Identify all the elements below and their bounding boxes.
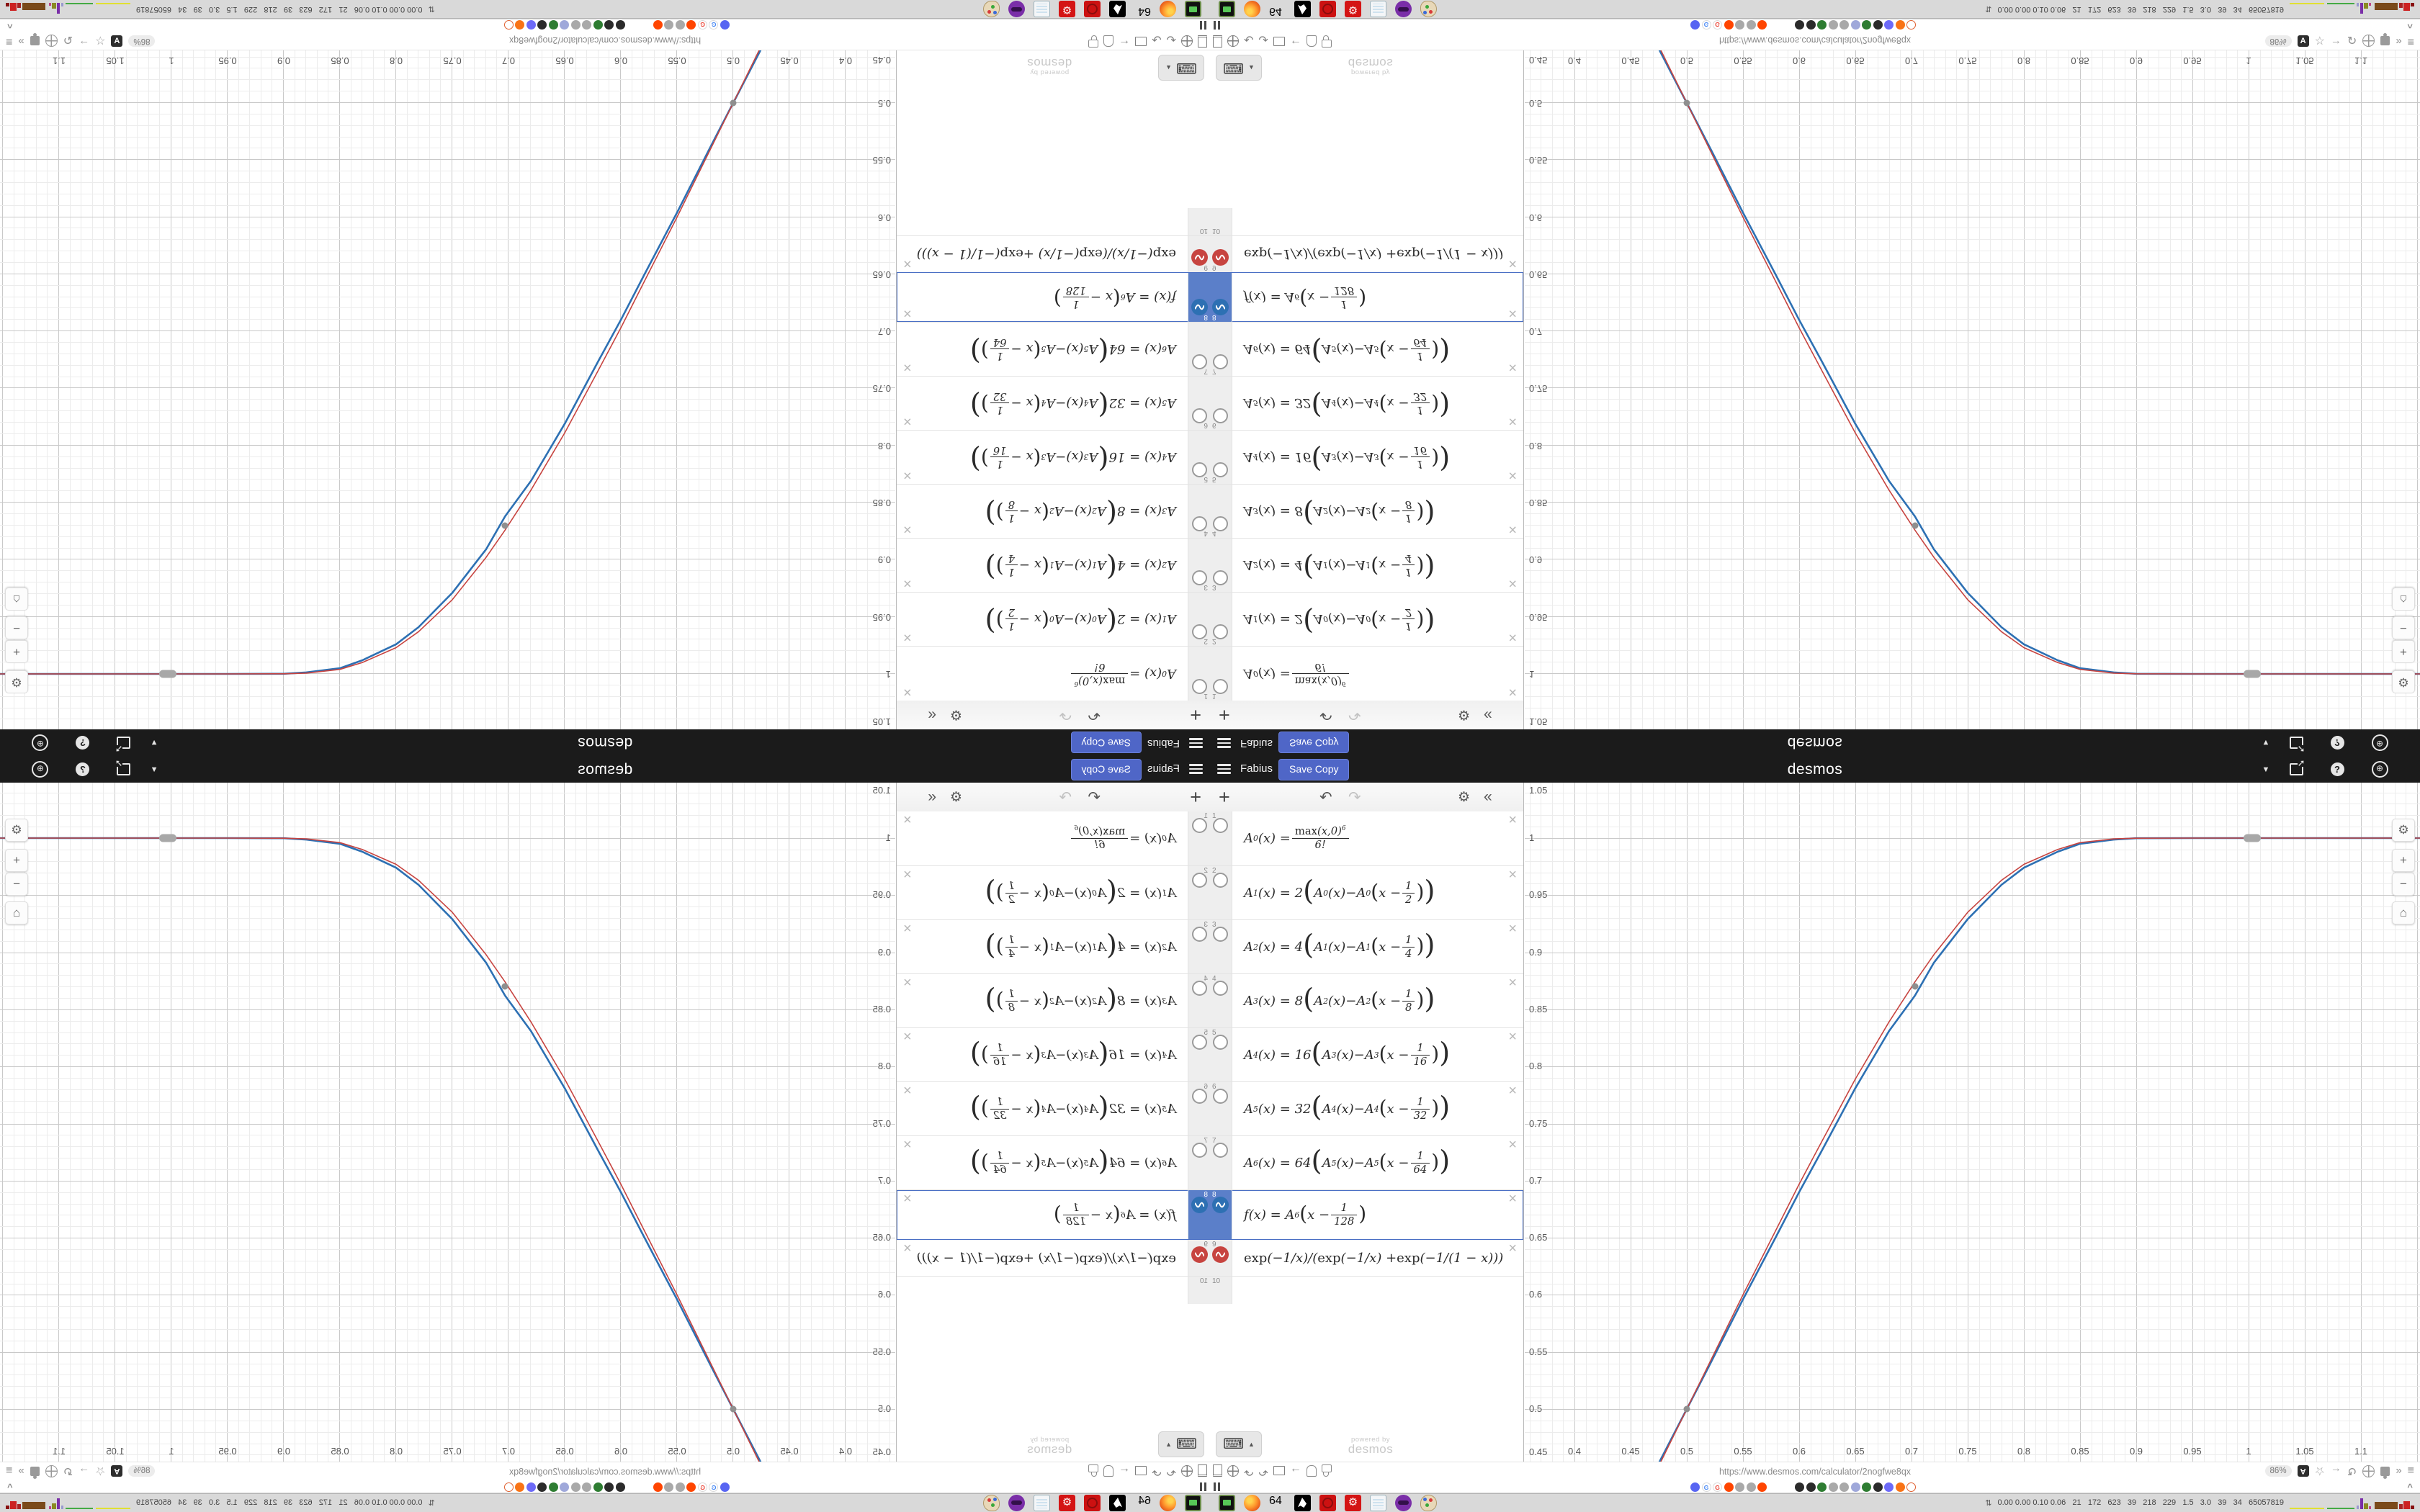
expression-row-10[interactable]: 10 bbox=[1210, 208, 1523, 235]
expression-math[interactable]: exp(−1/x)/( exp(−1/x) + exp(−1/(1 − x))) bbox=[897, 1240, 1188, 1276]
tab-favicon-reddit-light[interactable] bbox=[1906, 1482, 1916, 1492]
row-gutter[interactable]: 10 bbox=[1210, 1277, 1232, 1304]
help-icon[interactable]: ? bbox=[2329, 729, 2346, 756]
collapse-panel-icon[interactable]: « bbox=[928, 701, 936, 729]
expression-row-3[interactable]: 3A2(x) = 4(A1(x)−A1(x − 14))× bbox=[1210, 538, 1523, 592]
row-gutter[interactable]: 10 bbox=[1188, 1277, 1210, 1304]
taskbar-app-terminal[interactable] bbox=[1219, 1, 1235, 17]
taskbar-app-firefox[interactable] bbox=[1244, 1495, 1260, 1511]
tab-favicon-reddit[interactable] bbox=[1757, 20, 1767, 30]
zoom-in-button[interactable]: + bbox=[5, 640, 28, 663]
row-gutter[interactable]: 1 bbox=[1188, 647, 1210, 701]
tab-favicon-vine[interactable] bbox=[593, 1482, 603, 1492]
tab-favicon-trash[interactable] bbox=[1795, 20, 1804, 30]
curve-blue-f[interactable] bbox=[0, 838, 890, 1462]
expression-row-2[interactable]: 2A1(x) = 2(A0(x)−A0(x − 12))× bbox=[897, 866, 1210, 920]
row-gutter[interactable]: 7 bbox=[1188, 1136, 1210, 1189]
expression-math[interactable]: A0(x) = max(x,0)66! bbox=[897, 811, 1188, 865]
plot-toggle-circle-icon[interactable] bbox=[1192, 516, 1207, 531]
bookmark-star-icon[interactable]: ☆ bbox=[95, 1464, 105, 1478]
taskbar-app-redgear2[interactable] bbox=[1345, 1, 1361, 17]
expression-row-7[interactable]: 7A6(x) = 64(A5(x)−A5(x − 164))× bbox=[1210, 1136, 1523, 1190]
url-bar[interactable]: https://www.desmos.com/calculator/2nogfw… bbox=[1210, 1467, 2420, 1477]
caret-down-icon[interactable]: ▼ bbox=[2258, 756, 2274, 783]
row-gutter[interactable]: 3 bbox=[1188, 920, 1210, 973]
taskbar-app-palette[interactable] bbox=[983, 1, 1000, 17]
url-bar[interactable]: https://www.desmos.com/calculator/2nogfw… bbox=[0, 1467, 1210, 1477]
expression-math[interactable]: exp(−1/x)/( exp(−1/x) + exp(−1/(1 − x))) bbox=[1232, 1240, 1523, 1276]
expression-math[interactable]: A2(x) = 4(A1(x)−A1(x − 14)) bbox=[897, 920, 1188, 973]
extension-puzzle-icon[interactable] bbox=[30, 1467, 40, 1476]
tab-favicon-fish[interactable] bbox=[1839, 1482, 1849, 1492]
tab-favicon-fish[interactable] bbox=[1747, 1482, 1756, 1492]
expression-row-10[interactable]: 10 bbox=[897, 1277, 1210, 1304]
pause-icon[interactable] bbox=[1214, 1482, 1222, 1491]
tab-favicon-google[interactable]: G bbox=[1702, 20, 1711, 30]
globe-icon[interactable]: ⊕ bbox=[32, 729, 49, 756]
taskbar-app-wolf[interactable] bbox=[1109, 1, 1126, 17]
expression-row-10[interactable]: 10 bbox=[1210, 1277, 1523, 1304]
tray-chevron-icon[interactable]: ⇅ bbox=[1985, 5, 1991, 14]
expression-row-5[interactable]: 5A4(x) = 16(A3(x)−A3(x − 116))× bbox=[1210, 1028, 1523, 1082]
expression-row-7[interactable]: 7A6(x) = 64(A5(x)−A5(x − 164))× bbox=[897, 1136, 1210, 1190]
add-expression-button[interactable]: + bbox=[1190, 701, 1201, 729]
expression-row-6[interactable]: 6A5(x) = 32(A4(x)−A4(x − 132))× bbox=[1210, 376, 1523, 430]
tab-favicon-fish[interactable] bbox=[676, 20, 685, 30]
plot-toggle-circle-icon[interactable] bbox=[1192, 679, 1207, 694]
plot-toggle-circle-icon[interactable] bbox=[1213, 570, 1228, 585]
pause-icon[interactable] bbox=[1214, 21, 1222, 30]
tab-favicon-globe[interactable] bbox=[560, 20, 570, 30]
expression-math[interactable]: A3(x) = 8(A2(x)−A2(x − 18)) bbox=[897, 485, 1188, 538]
row-gutter[interactable]: 8 bbox=[1188, 273, 1210, 322]
redo-icon[interactable]: ↷ bbox=[1348, 783, 1361, 811]
plot-toggle-circle-icon[interactable] bbox=[1192, 818, 1207, 833]
tab-favicon-trash[interactable] bbox=[605, 20, 614, 30]
expression-row-1[interactable]: 1A0(x) = max(x,0)66!× bbox=[897, 811, 1210, 866]
tab-favicon-vine[interactable] bbox=[1862, 1482, 1871, 1492]
row-gutter[interactable]: 2 bbox=[1210, 866, 1232, 919]
row-gutter[interactable]: 5 bbox=[1188, 431, 1210, 484]
curve-red-exp[interactable] bbox=[0, 838, 890, 1462]
taskbar-app-notepad[interactable] bbox=[1370, 1495, 1386, 1511]
share-icon[interactable]: ➚ bbox=[115, 756, 133, 783]
curve-point-marker[interactable] bbox=[730, 1406, 737, 1413]
graph-area[interactable]: 0.40.450.50.550.60.650.70.750.80.850.90.… bbox=[1525, 50, 2420, 729]
zoom-in-button[interactable]: + bbox=[5, 849, 28, 872]
overflow-chevrons-icon[interactable]: » bbox=[2396, 1465, 2401, 1477]
tab-favicon-chat[interactable] bbox=[1884, 1482, 1894, 1492]
extension-puzzle-icon[interactable] bbox=[30, 37, 40, 46]
taskbar-app-purple[interactable] bbox=[1395, 1495, 1412, 1511]
menu-icon[interactable]: ≡ bbox=[6, 1464, 12, 1477]
overflow-chevrons-icon[interactable]: » bbox=[18, 1465, 24, 1477]
expression-math[interactable]: A0(x) = max(x,0)66! bbox=[897, 647, 1188, 701]
url-bar[interactable]: https://www.desmos.com/calculator/2nogfw… bbox=[0, 35, 1210, 45]
expression-math[interactable]: A1(x) = 2(A0(x)−A0(x − 12)) bbox=[1232, 593, 1523, 646]
tab-favicon-trash[interactable] bbox=[1873, 20, 1883, 30]
plot-wave-icon-blue[interactable] bbox=[1191, 299, 1208, 315]
expression-math[interactable] bbox=[897, 1277, 1188, 1304]
row-gutter[interactable]: 9 bbox=[1188, 236, 1210, 272]
tab-favicon-trash[interactable] bbox=[538, 1482, 547, 1492]
plot-toggle-circle-icon[interactable] bbox=[1213, 679, 1228, 694]
share-icon[interactable]: ➚ bbox=[115, 729, 133, 756]
expression-math[interactable]: A3(x) = 8(A2(x)−A2(x − 18)) bbox=[1232, 485, 1523, 538]
delete-expression-icon[interactable]: × bbox=[1508, 1084, 1517, 1098]
expression-math[interactable]: A0(x) = max(x,0)66! bbox=[1232, 811, 1523, 865]
delete-expression-icon[interactable]: × bbox=[903, 1241, 912, 1256]
expression-row-2[interactable]: 2A1(x) = 2(A0(x)−A0(x − 12))× bbox=[1210, 866, 1523, 920]
forward-arrow-icon[interactable]: → bbox=[2331, 1465, 2341, 1477]
tab-favicon-trash[interactable] bbox=[605, 1482, 614, 1492]
curve-point-marker[interactable] bbox=[1684, 1406, 1690, 1413]
gear-icon[interactable]: ⚙ bbox=[950, 783, 962, 811]
expression-math[interactable]: A3(x) = 8(A2(x)−A2(x − 18)) bbox=[1232, 974, 1523, 1027]
curve-red-exp[interactable] bbox=[1530, 838, 2420, 1462]
expression-row-1[interactable]: 1A0(x) = max(x,0)66!× bbox=[897, 646, 1210, 701]
expression-row-3[interactable]: 3A2(x) = 4(A1(x)−A1(x − 14))× bbox=[897, 538, 1210, 592]
hamburger-menu-icon[interactable] bbox=[1189, 737, 1203, 748]
delete-expression-icon[interactable]: × bbox=[903, 1030, 912, 1044]
expression-row-2[interactable]: 2A1(x) = 2(A0(x)−A0(x − 12))× bbox=[897, 592, 1210, 646]
delete-expression-icon[interactable]: × bbox=[1508, 1241, 1517, 1256]
curve-point-marker[interactable] bbox=[1684, 100, 1690, 107]
expression-math[interactable] bbox=[1232, 1277, 1523, 1304]
row-gutter[interactable]: 6 bbox=[1210, 1082, 1232, 1135]
home-button[interactable]: ⌂ bbox=[5, 588, 28, 611]
tab-favicon-discord[interactable] bbox=[1690, 20, 1700, 30]
tab-favicon-vine[interactable] bbox=[549, 1482, 558, 1492]
expression-math[interactable]: A5(x) = 32(A4(x)−A4(x − 132)) bbox=[1232, 377, 1523, 430]
expression-row-3[interactable]: 3A2(x) = 4(A1(x)−A1(x − 14))× bbox=[897, 920, 1210, 974]
delete-expression-icon[interactable]: × bbox=[1508, 414, 1517, 428]
taskbar-app-redgear2[interactable] bbox=[1059, 1, 1075, 17]
expression-row-4[interactable]: 4A3(x) = 8(A2(x)−A2(x − 18))× bbox=[897, 974, 1210, 1028]
add-expression-button[interactable]: + bbox=[1219, 701, 1230, 729]
keyboard-toggle-button[interactable]: ⌨ ▲ bbox=[1216, 1431, 1262, 1457]
reload-icon[interactable]: ↻ bbox=[2347, 34, 2357, 48]
gear-icon[interactable]: ⚙ bbox=[1458, 783, 1470, 811]
pause-icon[interactable] bbox=[1198, 21, 1206, 30]
row-gutter[interactable]: 3 bbox=[1210, 920, 1232, 973]
delete-expression-icon[interactable]: × bbox=[903, 414, 912, 428]
expression-row-4[interactable]: 4A3(x) = 8(A2(x)−A2(x − 18))× bbox=[897, 484, 1210, 538]
gear-icon[interactable]: ⚙ bbox=[950, 701, 962, 729]
expression-row-6[interactable]: 6A5(x) = 32(A4(x)−A4(x − 132))× bbox=[897, 1082, 1210, 1136]
globe-icon[interactable] bbox=[45, 35, 58, 48]
reload-icon[interactable]: ↻ bbox=[63, 1464, 73, 1478]
expression-math[interactable]: A0(x) = max(x,0)66! bbox=[1232, 647, 1523, 701]
delete-expression-icon[interactable]: × bbox=[903, 468, 912, 482]
tab-favicon-discord[interactable] bbox=[720, 1482, 730, 1492]
curve-point-marker[interactable] bbox=[502, 984, 508, 990]
tab-favicon-fish[interactable] bbox=[676, 1482, 685, 1492]
curve-point-marker[interactable] bbox=[502, 522, 508, 528]
extension-puzzle-icon[interactable] bbox=[2380, 37, 2390, 46]
taskbar-app-redgear2[interactable] bbox=[1059, 1495, 1075, 1511]
wrench-icon[interactable]: ⚙ bbox=[2392, 819, 2415, 842]
expression-math[interactable]: A6(x) = 64(A5(x)−A5(x − 164)) bbox=[897, 1136, 1188, 1189]
expression-row-10[interactable]: 10 bbox=[897, 208, 1210, 235]
drag-handle[interactable] bbox=[2244, 834, 2261, 842]
plot-toggle-circle-icon[interactable] bbox=[1192, 462, 1207, 477]
delete-expression-icon[interactable]: × bbox=[1508, 813, 1517, 827]
expression-math[interactable]: A1(x) = 2(A0(x)−A0(x − 12)) bbox=[897, 593, 1188, 646]
delete-expression-icon[interactable]: × bbox=[903, 360, 912, 374]
wrench-icon[interactable]: ⚙ bbox=[5, 819, 28, 842]
bookmark-star-icon[interactable]: ☆ bbox=[2315, 1464, 2325, 1478]
expression-row-8[interactable]: 8f(x) = A6(x − 1128)× bbox=[1210, 272, 1523, 322]
translate-icon[interactable]: A bbox=[2298, 35, 2309, 47]
tab-favicon-reddit[interactable] bbox=[1724, 1482, 1734, 1492]
row-gutter[interactable]: 8 bbox=[1210, 1190, 1232, 1239]
row-gutter[interactable]: 5 bbox=[1188, 1028, 1210, 1081]
tab-favicon-reddit[interactable] bbox=[1757, 1482, 1767, 1492]
delete-expression-icon[interactable]: × bbox=[903, 685, 912, 699]
row-gutter[interactable]: 4 bbox=[1188, 485, 1210, 538]
graph-area[interactable]: 0.40.450.50.550.60.650.70.750.80.850.90.… bbox=[1525, 783, 2420, 1462]
help-icon[interactable]: ? bbox=[2329, 756, 2346, 783]
plot-wave-icon-blue[interactable] bbox=[1191, 1197, 1208, 1213]
tab-favicon-fish[interactable] bbox=[665, 20, 674, 30]
expression-row-6[interactable]: 6A5(x) = 32(A4(x)−A4(x − 132))× bbox=[1210, 1082, 1523, 1136]
share-icon[interactable]: ➚ bbox=[2287, 756, 2305, 783]
globe-icon[interactable] bbox=[45, 1465, 58, 1477]
delete-expression-icon[interactable]: × bbox=[903, 1192, 912, 1206]
tab-favicon-trash[interactable] bbox=[538, 20, 547, 30]
plot-wave-icon-red[interactable] bbox=[1191, 249, 1208, 266]
curve-blue-f[interactable] bbox=[1530, 838, 2420, 1462]
add-expression-button[interactable]: + bbox=[1219, 783, 1230, 811]
zoom-level-badge[interactable]: 86% bbox=[128, 35, 155, 47]
save-copy-button[interactable]: Save Copy bbox=[1071, 732, 1142, 753]
expression-row-9[interactable]: 9exp(−1/x)/( exp(−1/x) + exp(−1/(1 − x))… bbox=[897, 235, 1210, 272]
expression-math[interactable]: A4(x) = 16(A3(x)−A3(x − 116)) bbox=[897, 1028, 1188, 1081]
taskbar-app-redgear1[interactable] bbox=[1084, 1, 1101, 17]
tab-favicon-fish[interactable] bbox=[1747, 20, 1756, 30]
url-bar[interactable]: https://www.desmos.com/calculator/2nogfw… bbox=[1210, 35, 2420, 45]
forward-arrow-icon[interactable]: → bbox=[79, 35, 89, 48]
row-gutter[interactable]: 7 bbox=[1210, 1136, 1232, 1189]
delete-expression-icon[interactable]: × bbox=[903, 306, 912, 320]
tab-favicon-trash[interactable] bbox=[616, 1482, 625, 1492]
zoom-out-button[interactable]: − bbox=[2392, 873, 2415, 896]
taskbar-app-purple[interactable] bbox=[1395, 1, 1412, 17]
expression-math[interactable] bbox=[1232, 208, 1523, 235]
extension-puzzle-icon[interactable] bbox=[2380, 1467, 2390, 1476]
row-gutter[interactable]: 3 bbox=[1188, 539, 1210, 592]
plot-toggle-circle-icon[interactable] bbox=[1192, 1089, 1207, 1104]
expression-math[interactable]: exp(−1/x)/( exp(−1/x) + exp(−1/(1 − x))) bbox=[1232, 236, 1523, 272]
taskbar-app-terminal[interactable] bbox=[1219, 1495, 1235, 1511]
tab-favicon-trash[interactable] bbox=[1795, 1482, 1804, 1492]
expression-math[interactable]: A5(x) = 32(A4(x)−A4(x − 132)) bbox=[897, 377, 1188, 430]
expression-row-2[interactable]: 2A1(x) = 2(A0(x)−A0(x − 12))× bbox=[1210, 592, 1523, 646]
tab-favicon-fish[interactable] bbox=[571, 1482, 581, 1492]
taskbar-app-firefox[interactable] bbox=[1160, 1495, 1176, 1511]
delete-expression-icon[interactable]: × bbox=[903, 630, 912, 644]
plot-wave-icon-red[interactable] bbox=[1212, 249, 1229, 266]
row-gutter[interactable]: 2 bbox=[1188, 593, 1210, 646]
row-gutter[interactable]: 1 bbox=[1210, 811, 1232, 865]
undo-icon[interactable]: ↶ bbox=[1319, 783, 1332, 811]
redo-icon[interactable]: ↷ bbox=[1059, 783, 1072, 811]
row-gutter[interactable]: 4 bbox=[1188, 974, 1210, 1027]
collapse-panel-icon[interactable]: « bbox=[928, 783, 936, 811]
undo-icon[interactable]: ↶ bbox=[1088, 783, 1101, 811]
plot-toggle-circle-icon[interactable] bbox=[1192, 927, 1207, 942]
delete-expression-icon[interactable]: × bbox=[1508, 1192, 1517, 1206]
tab-favicon-chat[interactable] bbox=[1884, 20, 1894, 30]
expression-math[interactable]: f(x) = A6(x − 1128) bbox=[1232, 273, 1523, 322]
expression-math[interactable]: A1(x) = 2(A0(x)−A0(x − 12)) bbox=[1232, 866, 1523, 919]
wrench-icon[interactable]: ⚙ bbox=[2392, 670, 2415, 693]
expression-row-8[interactable]: 8f(x) = A6(x − 1128)× bbox=[897, 1190, 1210, 1240]
wrench-icon[interactable]: ⚙ bbox=[5, 670, 28, 693]
tab-favicon-trash[interactable] bbox=[1873, 1482, 1883, 1492]
expression-math[interactable]: A2(x) = 4(A1(x)−A1(x − 14)) bbox=[1232, 920, 1523, 973]
row-gutter[interactable]: 1 bbox=[1210, 647, 1232, 701]
expression-math[interactable]: A5(x) = 32(A4(x)−A4(x − 132)) bbox=[897, 1082, 1188, 1135]
plot-toggle-circle-icon[interactable] bbox=[1213, 354, 1228, 369]
plot-toggle-circle-icon[interactable] bbox=[1213, 873, 1228, 888]
drag-handle[interactable] bbox=[159, 834, 176, 842]
pause-icon[interactable] bbox=[1198, 1482, 1206, 1491]
tab-favicon-vine[interactable] bbox=[1817, 20, 1827, 30]
taskbar-app-wolf[interactable] bbox=[1109, 1495, 1126, 1511]
undo-icon[interactable]: ↶ bbox=[1088, 701, 1101, 729]
graph-area[interactable]: 0.40.450.50.550.60.650.70.750.80.850.90.… bbox=[0, 50, 895, 729]
taskbar-app-floppy64[interactable]: 64 bbox=[1134, 1495, 1151, 1511]
expression-math[interactable]: A6(x) = 64(A5(x)−A5(x − 164)) bbox=[897, 323, 1188, 376]
plot-wave-icon-red[interactable] bbox=[1212, 1246, 1229, 1263]
row-gutter[interactable]: 5 bbox=[1210, 431, 1232, 484]
collapse-panel-icon[interactable]: « bbox=[1484, 783, 1492, 811]
row-gutter[interactable]: 9 bbox=[1210, 236, 1232, 272]
tab-favicon-trash[interactable] bbox=[1806, 1482, 1816, 1492]
expression-row-1[interactable]: 1A0(x) = max(x,0)66!× bbox=[1210, 811, 1523, 866]
taskbar-app-purple[interactable] bbox=[1008, 1, 1025, 17]
expression-row-9[interactable]: 9exp(−1/x)/( exp(−1/x) + exp(−1/(1 − x))… bbox=[897, 1240, 1210, 1277]
expression-row-6[interactable]: 6A5(x) = 32(A4(x)−A4(x − 132))× bbox=[897, 376, 1210, 430]
home-button[interactable]: ⌂ bbox=[2392, 588, 2415, 611]
tab-overflow-chevron[interactable]: ^ bbox=[2407, 1482, 2413, 1493]
expression-row-4[interactable]: 4A3(x) = 8(A2(x)−A2(x − 18))× bbox=[1210, 974, 1523, 1028]
taskbar-app-firefox[interactable] bbox=[1244, 1, 1260, 17]
expression-math[interactable]: A6(x) = 64(A5(x)−A5(x − 164)) bbox=[1232, 1136, 1523, 1189]
tab-overflow-chevron[interactable]: ^ bbox=[7, 1482, 13, 1493]
tab-favicon-gear[interactable] bbox=[516, 20, 525, 30]
tab-favicon-fish[interactable] bbox=[1829, 20, 1838, 30]
plot-toggle-circle-icon[interactable] bbox=[1213, 981, 1228, 996]
tab-favicon-chat[interactable] bbox=[526, 20, 536, 30]
expression-math[interactable]: exp(−1/x)/( exp(−1/x) + exp(−1/(1 − x))) bbox=[897, 236, 1188, 272]
tab-favicon-gear[interactable] bbox=[1896, 20, 1905, 30]
redo-icon[interactable]: ↷ bbox=[1059, 701, 1072, 729]
tab-favicon-fish[interactable] bbox=[1829, 1482, 1838, 1492]
expression-row-8[interactable]: 8f(x) = A6(x − 1128)× bbox=[897, 272, 1210, 322]
delete-expression-icon[interactable]: × bbox=[1508, 468, 1517, 482]
delete-expression-icon[interactable]: × bbox=[1508, 630, 1517, 644]
share-icon[interactable]: ➚ bbox=[2287, 729, 2305, 756]
row-gutter[interactable]: 10 bbox=[1210, 208, 1232, 235]
curve-blue-f[interactable] bbox=[0, 50, 890, 674]
redo-icon[interactable]: ↷ bbox=[1348, 701, 1361, 729]
tab-favicon-google[interactable]: G bbox=[1713, 1482, 1722, 1492]
delete-expression-icon[interactable]: × bbox=[1508, 868, 1517, 882]
row-gutter[interactable]: 6 bbox=[1210, 377, 1232, 430]
tab-favicon-discord[interactable] bbox=[720, 20, 730, 30]
hamburger-menu-icon[interactable] bbox=[1217, 737, 1231, 748]
overflow-chevrons-icon[interactable]: » bbox=[18, 35, 24, 48]
translate-icon[interactable]: A bbox=[111, 35, 122, 47]
curve-red-exp[interactable] bbox=[1530, 50, 2420, 674]
globe-icon[interactable]: ⊕ bbox=[2371, 756, 2388, 783]
delete-expression-icon[interactable]: × bbox=[903, 868, 912, 882]
curve-point-marker[interactable] bbox=[730, 100, 737, 107]
tab-overflow-chevron[interactable]: ^ bbox=[2407, 19, 2413, 30]
plot-toggle-circle-icon[interactable] bbox=[1213, 462, 1228, 477]
expression-math[interactable]: A6(x) = 64(A5(x)−A5(x − 164)) bbox=[1232, 323, 1523, 376]
row-gutter[interactable]: 9 bbox=[1210, 1240, 1232, 1276]
translate-icon[interactable]: A bbox=[2298, 1465, 2309, 1477]
row-gutter[interactable]: 1 bbox=[1188, 811, 1210, 865]
tab-favicon-google[interactable]: G bbox=[698, 1482, 707, 1492]
delete-expression-icon[interactable]: × bbox=[903, 976, 912, 990]
expression-math[interactable]: f(x) = A6(x − 1128) bbox=[897, 1190, 1188, 1239]
row-gutter[interactable]: 6 bbox=[1188, 377, 1210, 430]
expression-math[interactable]: A3(x) = 8(A2(x)−A2(x − 18)) bbox=[897, 974, 1188, 1027]
keyboard-toggle-button[interactable]: ⌨ ▲ bbox=[1216, 55, 1262, 81]
delete-expression-icon[interactable]: × bbox=[903, 522, 912, 536]
row-gutter[interactable]: 3 bbox=[1210, 539, 1232, 592]
tab-favicon-gear[interactable] bbox=[1896, 1482, 1905, 1492]
expression-row-9[interactable]: 9exp(−1/x)/( exp(−1/x) + exp(−1/(1 − x))… bbox=[1210, 1240, 1523, 1277]
gear-icon[interactable]: ⚙ bbox=[1458, 701, 1470, 729]
taskbar-app-palette[interactable] bbox=[1420, 1495, 1437, 1511]
expression-math[interactable]: A1(x) = 2(A0(x)−A0(x − 12)) bbox=[897, 866, 1188, 919]
taskbar-app-redgear2[interactable] bbox=[1345, 1495, 1361, 1511]
taskbar-app-floppy64[interactable]: 64 bbox=[1269, 1495, 1286, 1511]
menu-icon[interactable]: ≡ bbox=[2408, 1464, 2414, 1477]
tab-favicon-globe[interactable] bbox=[1851, 20, 1860, 30]
caret-down-icon[interactable]: ▼ bbox=[2258, 729, 2274, 756]
plot-toggle-circle-icon[interactable] bbox=[1192, 354, 1207, 369]
keyboard-toggle-button[interactable]: ⌨ ▲ bbox=[1158, 55, 1204, 81]
tab-favicon-globe[interactable] bbox=[560, 1482, 570, 1492]
taskbar-app-firefox[interactable] bbox=[1160, 1, 1176, 17]
expression-row-7[interactable]: 7A6(x) = 64(A5(x)−A5(x − 164))× bbox=[897, 322, 1210, 376]
home-button[interactable]: ⌂ bbox=[5, 901, 28, 924]
zoom-level-badge[interactable]: 86% bbox=[2265, 1465, 2292, 1477]
tab-favicon-fish[interactable] bbox=[665, 1482, 674, 1492]
drag-handle[interactable] bbox=[159, 670, 176, 678]
delete-expression-icon[interactable]: × bbox=[903, 256, 912, 271]
plot-toggle-circle-icon[interactable] bbox=[1192, 570, 1207, 585]
curve-red-exp[interactable] bbox=[0, 50, 890, 674]
delete-expression-icon[interactable]: × bbox=[903, 1084, 912, 1098]
plot-toggle-circle-icon[interactable] bbox=[1213, 408, 1228, 423]
row-gutter[interactable]: 7 bbox=[1210, 323, 1232, 376]
plot-toggle-circle-icon[interactable] bbox=[1192, 1143, 1207, 1158]
hamburger-menu-icon[interactable] bbox=[1217, 764, 1231, 775]
globe-icon[interactable] bbox=[2362, 1465, 2375, 1477]
row-gutter[interactable]: 9 bbox=[1188, 1240, 1210, 1276]
plot-toggle-circle-icon[interactable] bbox=[1213, 1143, 1228, 1158]
zoom-out-button[interactable]: − bbox=[2392, 616, 2415, 639]
taskbar-app-terminal[interactable] bbox=[1185, 1495, 1201, 1511]
